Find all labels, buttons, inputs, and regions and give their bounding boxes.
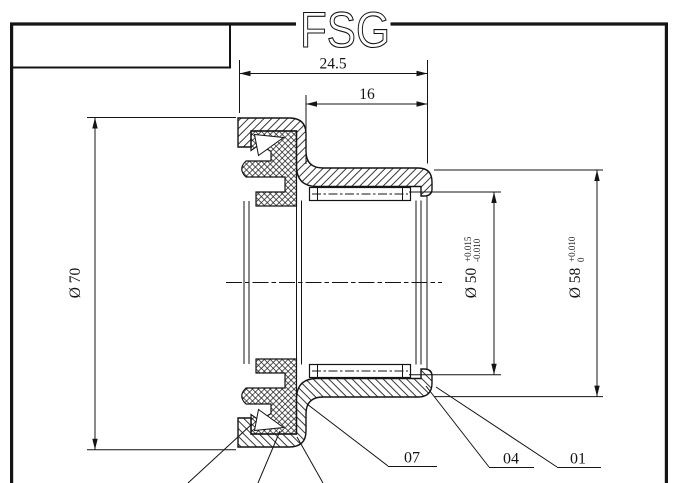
dim-sleeve-diameter-text: Ø 58 (567, 267, 584, 298)
outer-case-section (238, 118, 432, 196)
dim-sleeve-diameter: Ø 58 +0.010 0 (434, 170, 603, 397)
technical-drawing: FSG 24.5 16 Ø (0, 0, 680, 483)
dim-seat-width-text: 16 (359, 86, 375, 103)
title-block-box (10, 25, 230, 68)
dim-bore-diameter: Ø 50 +0.015 -0.010 (409, 192, 501, 375)
seal-section-lower (238, 359, 432, 447)
callout-04: 04 (426, 386, 534, 468)
dim-outer-diameter-text: Ø 70 (67, 267, 84, 298)
dim-outer-diameter: Ø 70 (67, 118, 236, 450)
brand-title: FSG (300, 2, 390, 58)
callout-04-text: 04 (503, 451, 519, 468)
callout-07-text: 07 (404, 450, 420, 467)
callout-07: 07 (307, 404, 437, 467)
seal-section-upper (238, 118, 432, 206)
callout-01-text: 01 (570, 451, 586, 468)
dim-bore-diameter-text: Ø 50 (463, 267, 480, 298)
dim-bore-tol-lower: -0.010 (472, 238, 482, 262)
dim-sleeve-tol-lower: 0 (576, 257, 586, 262)
drawing-sheet: FSG 24.5 16 Ø (0, 0, 680, 483)
dim-seat-width: 16 (306, 86, 428, 164)
dim-overall-width-text: 24.5 (319, 56, 346, 73)
